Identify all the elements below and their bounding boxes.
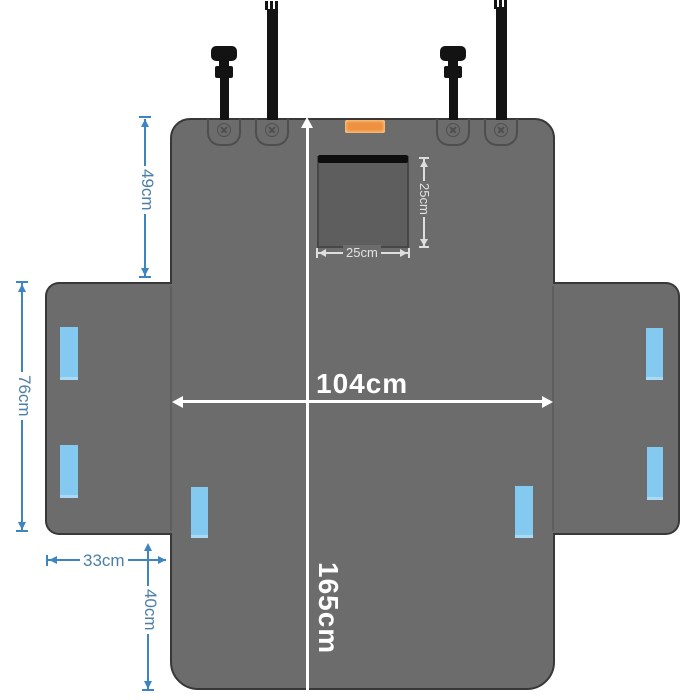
strap-webbing [267, 9, 278, 120]
dim-end-bar [139, 276, 151, 278]
snap-tab [484, 119, 518, 146]
velcro-strip [60, 327, 78, 380]
long-strap-left [262, 1, 282, 120]
dim-end-bar [16, 281, 28, 283]
snap-tab [207, 119, 241, 146]
strap-webbing [496, 7, 507, 120]
arrow-left-icon [319, 249, 326, 257]
dim-end-bar [419, 157, 429, 159]
arrow-left-icon [172, 396, 183, 408]
snap-tab [255, 119, 289, 146]
dim-label: 49cm [136, 166, 158, 214]
long-strap-right [491, 0, 511, 120]
dim-label: 33cm [80, 551, 128, 571]
dim-end-bar [16, 530, 28, 532]
dim-line [176, 400, 550, 403]
dim-end-bar [419, 246, 429, 248]
buckle-strap-right [434, 46, 472, 120]
right-fold-seam [552, 286, 554, 531]
arrow-up-icon [420, 160, 428, 167]
zipper-bar [318, 155, 408, 163]
arrow-down-icon [18, 522, 26, 530]
seat-cover-dimension-diagram: 165cm 104cm 49cm 76cm 33cm [0, 0, 700, 700]
arrow-down-icon [144, 681, 152, 689]
buckle-head-icon [211, 46, 237, 61]
arrow-right-icon [158, 556, 166, 564]
velcro-strip [647, 447, 663, 500]
arrow-up-icon [18, 284, 26, 292]
left-fold-seam [170, 286, 172, 531]
mesh-window [317, 156, 409, 248]
dim-end-bar [46, 555, 48, 566]
arrow-left-icon [49, 556, 57, 564]
dim-label: 25cm [417, 181, 432, 217]
arrow-up-icon [301, 117, 313, 128]
arrow-down-icon [420, 239, 428, 246]
arrow-up-icon [141, 119, 149, 127]
arrow-right-icon [400, 249, 407, 257]
dim-label: 25cm [343, 245, 381, 260]
arrow-down-icon [141, 268, 149, 276]
snap-button-icon [217, 123, 231, 137]
dim-end-bar [408, 248, 410, 258]
dim-label: 165cm [312, 562, 344, 654]
snap-button-icon [446, 123, 460, 137]
arrow-up-icon [144, 543, 152, 551]
velcro-strip [515, 486, 533, 538]
snap-tab [436, 119, 470, 146]
velcro-strip [60, 445, 78, 498]
velcro-strip [191, 487, 208, 538]
dim-end-bar [316, 248, 318, 258]
dim-line [306, 122, 309, 690]
dim-label: 76cm [13, 372, 35, 420]
snap-button-icon [265, 123, 279, 137]
buckle-head-icon [440, 46, 466, 61]
dim-end-bar [142, 689, 154, 691]
strap-webbing [449, 77, 458, 120]
dim-label: 104cm [316, 368, 408, 400]
buckle-strap-left [205, 46, 243, 120]
brand-label [345, 120, 385, 133]
dim-end-bar [139, 116, 151, 118]
dim-label: 40cm [139, 586, 161, 634]
arrow-right-icon [542, 396, 553, 408]
strap-webbing [220, 77, 229, 120]
velcro-strip [646, 328, 663, 380]
snap-button-icon [494, 123, 508, 137]
